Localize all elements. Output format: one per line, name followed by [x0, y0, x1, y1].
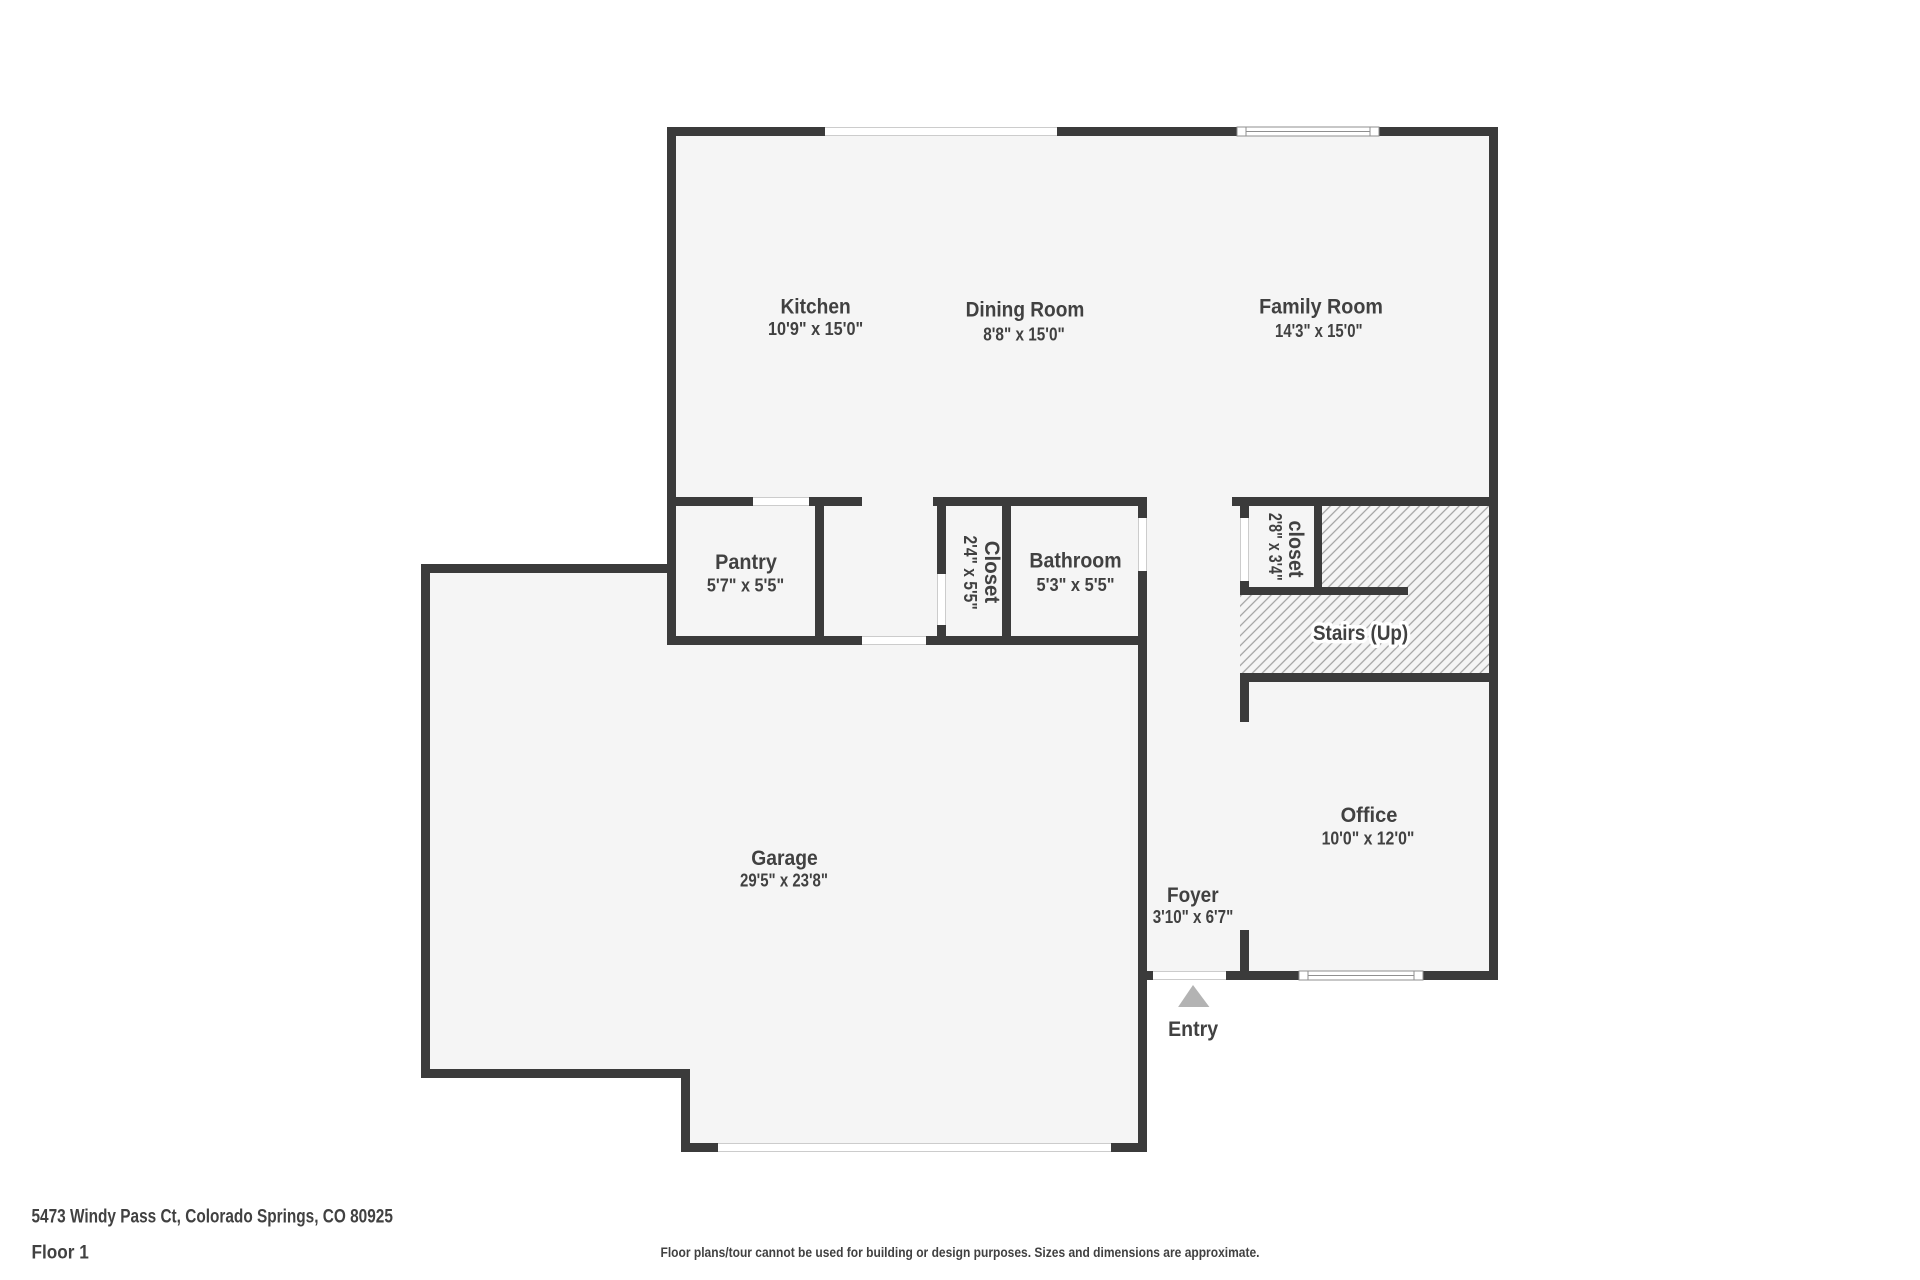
svg-text:10'9" x 15'0": 10'9" x 15'0" — [768, 319, 863, 339]
svg-text:5473 Windy Pass Ct, Colorado S: 5473 Windy Pass Ct, Colorado Springs, CO… — [32, 1207, 394, 1228]
svg-text:14'3" x 15'0": 14'3" x 15'0" — [1275, 321, 1363, 341]
svg-text:2'8" x 3'4": 2'8" x 3'4" — [1265, 513, 1285, 581]
svg-text:8'8" x 15'0": 8'8" x 15'0" — [983, 325, 1065, 345]
svg-text:2'4" x 5'5": 2'4" x 5'5" — [960, 536, 980, 610]
svg-text:Family Room: Family Room — [1259, 296, 1383, 319]
svg-text:closet: closet — [1284, 521, 1307, 578]
svg-text:Kitchen: Kitchen — [780, 296, 850, 319]
svg-text:Pantry: Pantry — [715, 551, 777, 574]
svg-text:5'7" x 5'5": 5'7" x 5'5" — [707, 576, 784, 596]
svg-text:Floor 1: Floor 1 — [32, 1243, 90, 1264]
svg-text:3'10" x 6'7": 3'10" x 6'7" — [1153, 907, 1234, 927]
svg-text:29'5" x 23'8": 29'5" x 23'8" — [740, 871, 828, 891]
svg-text:Floor plans/tour cannot be use: Floor plans/tour cannot be used for buil… — [661, 1245, 1260, 1260]
svg-text:5'3" x 5'5": 5'3" x 5'5" — [1036, 575, 1114, 595]
svg-text:10'0" x 12'0": 10'0" x 12'0" — [1322, 829, 1415, 849]
svg-text:Entry: Entry — [1168, 1018, 1218, 1041]
svg-text:Closet: Closet — [980, 541, 1003, 604]
svg-text:Stairs (Up): Stairs (Up) — [1313, 622, 1408, 645]
svg-text:Bathroom: Bathroom — [1029, 550, 1121, 573]
svg-text:Garage: Garage — [751, 847, 818, 870]
svg-text:Dining Room: Dining Room — [966, 299, 1085, 322]
svg-text:Foyer: Foyer — [1167, 884, 1219, 907]
svg-text:Office: Office — [1341, 804, 1398, 827]
